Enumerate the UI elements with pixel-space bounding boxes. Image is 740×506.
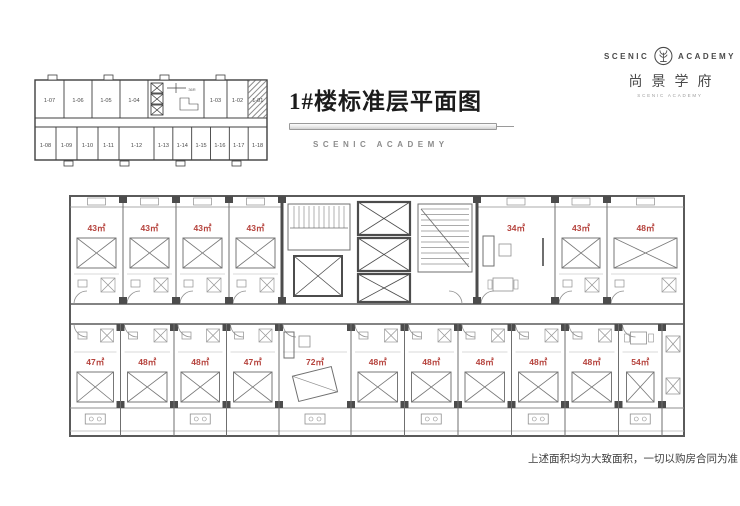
- table-icon: [499, 244, 511, 256]
- door-arc-icon: [462, 324, 475, 337]
- ac-unit-icon: [528, 414, 548, 424]
- keyplan-unit-number: 1-10: [82, 143, 93, 149]
- room-top-4: 43㎡: [233, 198, 278, 304]
- shower-icon: [385, 329, 398, 342]
- shower-icon: [207, 278, 221, 292]
- room-top-1: 43㎡: [74, 196, 123, 304]
- table-icon: [299, 336, 310, 347]
- balcony-equipment-icon: [666, 378, 680, 394]
- bed-icon: [77, 372, 114, 402]
- ac-unit-icon: [247, 198, 265, 205]
- elevator-icon: [151, 94, 163, 104]
- keyplan-unit-number: 1-01: [252, 98, 263, 104]
- keyplan-unit-number: 1-08: [40, 143, 51, 149]
- column: [119, 297, 127, 304]
- area-disclaimer: 上述面积均为大致面积，一切以购房合同为准: [528, 451, 738, 466]
- room-area-label: 48㎡: [191, 357, 209, 367]
- column: [603, 297, 611, 304]
- room-area-label: 43㎡: [88, 223, 106, 233]
- door-arc-icon: [125, 324, 138, 337]
- ac-unit-icon: [141, 198, 159, 205]
- door-arc-icon: [611, 291, 624, 304]
- ac-unit-icon: [572, 198, 590, 205]
- column: [172, 196, 180, 203]
- desk-icon: [292, 367, 337, 402]
- door-arc-icon: [569, 324, 582, 337]
- room-area-label: 48㎡: [529, 357, 547, 367]
- shower-icon: [585, 278, 599, 292]
- room-bottom-10: 48㎡: [569, 324, 619, 436]
- toilet-icon: [520, 332, 529, 339]
- shower-icon: [101, 278, 115, 292]
- keyplan-diagram: 1-071-061-051-041-031-021-0136R1-081-091…: [34, 74, 269, 167]
- door-arc-icon: [516, 324, 529, 337]
- bed-icon: [412, 372, 452, 402]
- room-area-label: 48㎡: [637, 223, 655, 233]
- page-title: 1#楼标准层平面图: [289, 82, 524, 116]
- ac-unit-icon: [637, 198, 655, 205]
- bed-icon: [627, 372, 655, 402]
- room-area-label: 48㎡: [422, 357, 440, 367]
- logo-tagline: SCENIC ACADEMY: [604, 93, 736, 98]
- column: [473, 297, 481, 304]
- room-area-label: 43㎡: [247, 223, 265, 233]
- dining-table-icon: [493, 278, 513, 291]
- room-area-label: 48㎡: [138, 357, 156, 367]
- door-arc-icon: [559, 291, 572, 304]
- keyplan-unit-number: 1-18: [252, 143, 263, 149]
- keyplan-unit-number: 1-15: [195, 143, 206, 149]
- toilet-icon: [78, 332, 87, 339]
- room-top-5: 34㎡: [481, 196, 555, 304]
- dining-table-icon: [631, 332, 647, 344]
- title-block: 1#楼标准层平面图 SCENIC ACADEMY: [289, 82, 524, 149]
- room-area-label: 43㎡: [572, 223, 590, 233]
- column: [278, 196, 286, 203]
- keyplan-unit-number: 1-14: [177, 143, 188, 149]
- tree-icon: [654, 44, 673, 68]
- toilet-icon: [131, 280, 140, 287]
- bed-icon: [183, 238, 222, 268]
- title-divider-bar: [289, 123, 497, 130]
- door-arc-icon: [180, 291, 193, 304]
- keyplan-unit-number: 1-11: [103, 143, 114, 149]
- column: [551, 297, 559, 304]
- elevator-icon: [358, 238, 410, 271]
- ac-unit-icon: [305, 414, 325, 424]
- toilet-icon: [413, 332, 422, 339]
- shower-icon: [154, 329, 167, 342]
- room-top-6: 43㎡: [559, 196, 607, 304]
- room-top-7: 48㎡: [611, 198, 680, 304]
- room-area-label: 48㎡: [369, 357, 387, 367]
- shower-icon: [492, 329, 505, 342]
- column: [603, 196, 611, 203]
- ac-unit-icon: [194, 198, 212, 205]
- elevator-icon: [358, 274, 410, 302]
- elevator-icon: [151, 105, 163, 115]
- bed-icon: [614, 238, 677, 268]
- keyplan-stair-label: 36R: [188, 87, 195, 92]
- room-bottom-4: 47㎡: [231, 324, 280, 436]
- door-arc-icon: [355, 324, 368, 337]
- door-arc-icon: [449, 291, 462, 304]
- logo-name-row: SCENIC ACADEMY: [604, 44, 736, 68]
- shower-icon: [207, 329, 220, 342]
- column: [278, 297, 286, 304]
- room-top-3: 43㎡: [180, 196, 229, 304]
- toilet-icon: [184, 280, 193, 287]
- elevator-icon: [294, 256, 342, 296]
- shower-icon: [599, 329, 612, 342]
- room-area-label: 72㎡: [306, 357, 324, 367]
- bed-icon: [465, 372, 505, 402]
- keyplan-unit-number: 1-13: [158, 143, 169, 149]
- keyplan-unit-number: 1-09: [61, 143, 72, 149]
- column: [172, 297, 180, 304]
- room-bottom-7: 48㎡: [409, 324, 459, 436]
- door-arc-icon: [233, 291, 246, 304]
- room-bottom-11: 54㎡: [623, 324, 663, 436]
- room-area-label: 47㎡: [86, 357, 104, 367]
- room-area-label: 48㎡: [583, 357, 601, 367]
- keyplan-unit-number: 1-02: [232, 98, 243, 104]
- room-bottom-2: 48㎡: [125, 324, 175, 436]
- elevator-icon: [151, 83, 163, 93]
- logo-chinese-name: 尚景学府: [604, 71, 736, 91]
- shower-icon: [260, 278, 274, 292]
- toilet-icon: [573, 332, 582, 339]
- logo-name-right: ACADEMY: [678, 52, 736, 61]
- shower-icon: [101, 329, 114, 342]
- sofa-icon: [483, 236, 494, 266]
- keyplan-unit-number: 1-05: [100, 98, 111, 104]
- door-arc-icon: [178, 324, 191, 337]
- shower-icon: [154, 278, 168, 292]
- room-area-label: 34㎡: [507, 223, 525, 233]
- room-area-label: 43㎡: [141, 223, 159, 233]
- column: [119, 196, 127, 203]
- room-bottom-9: 48㎡: [516, 324, 566, 436]
- toilet-icon: [563, 280, 572, 287]
- shower-icon: [438, 329, 451, 342]
- sofa-icon: [284, 332, 294, 358]
- ac-unit-icon: [190, 414, 210, 424]
- door-arc-icon: [481, 291, 494, 304]
- bed-icon: [562, 238, 600, 268]
- room-bottom-6: 48㎡: [355, 324, 405, 436]
- keyplan-unit-number: 1-17: [233, 143, 244, 149]
- keyplan-unit-number: 1-06: [72, 98, 83, 104]
- floorplan-drawing: 43㎡43㎡43㎡43㎡34㎡43㎡48㎡47㎡48㎡48㎡47㎡72㎡48㎡4…: [62, 186, 694, 452]
- toilet-icon: [359, 332, 368, 339]
- balcony-equipment-icon: [666, 336, 680, 352]
- ac-unit-icon: [507, 198, 525, 205]
- bed-icon: [181, 372, 220, 402]
- brand-logo: SCENIC ACADEMY 尚景学府 SCENIC ACADEMY: [604, 44, 736, 98]
- toilet-icon: [466, 332, 475, 339]
- toilet-icon: [78, 280, 87, 287]
- column: [225, 297, 233, 304]
- door-arc-icon: [74, 291, 87, 304]
- room-bottom-1: 47㎡: [74, 324, 121, 436]
- keyplan-unit-number: 1-07: [44, 98, 55, 104]
- room-area-label: 54㎡: [631, 357, 649, 367]
- room-area-label: 47㎡: [244, 357, 262, 367]
- room-bottom-8: 48㎡: [462, 324, 512, 436]
- ac-unit-icon: [630, 414, 650, 424]
- column: [551, 196, 559, 203]
- ac-unit-icon: [88, 198, 106, 205]
- room-area-label: 43㎡: [194, 223, 212, 233]
- bed-icon: [128, 372, 168, 402]
- toilet-icon: [129, 332, 138, 339]
- door-arc-icon: [74, 324, 87, 337]
- shower-icon: [662, 278, 676, 292]
- shower-icon: [259, 329, 272, 342]
- page: 1-071-061-051-041-031-021-0136R1-081-091…: [0, 0, 740, 506]
- bed-icon: [519, 372, 559, 402]
- door-arc-icon: [127, 291, 140, 304]
- bed-icon: [130, 238, 169, 268]
- room-area-label: 48㎡: [476, 357, 494, 367]
- logo-name-left: SCENIC: [604, 52, 649, 61]
- keyplan-unit-number: 1-04: [128, 98, 139, 104]
- door-arc-icon: [231, 324, 244, 337]
- toilet-icon: [237, 280, 246, 287]
- shower-icon: [545, 329, 558, 342]
- toilet-icon: [235, 332, 244, 339]
- toilet-icon: [615, 280, 624, 287]
- column: [225, 196, 233, 203]
- ac-unit-icon: [421, 414, 441, 424]
- elevator-icon: [358, 202, 410, 235]
- column: [473, 196, 481, 203]
- keyplan-unit-number: 1-12: [131, 143, 142, 149]
- bed-icon: [236, 238, 275, 268]
- title-subtitle: SCENIC ACADEMY: [289, 140, 524, 149]
- keyplan-unit-number: 1-16: [214, 143, 225, 149]
- bed-icon: [77, 238, 116, 268]
- door-arc-icon: [409, 324, 422, 337]
- toilet-icon: [182, 332, 191, 339]
- room-bottom-3: 48㎡: [178, 324, 227, 436]
- keyplan-unit-number: 1-03: [210, 98, 221, 104]
- room-top-2: 43㎡: [127, 196, 176, 304]
- bed-icon: [572, 372, 612, 402]
- ac-unit-icon: [85, 414, 105, 424]
- bed-icon: [358, 372, 398, 402]
- bed-icon: [234, 372, 273, 402]
- room-bottom-5: 72㎡: [283, 324, 351, 436]
- elevator-stair-core: [282, 196, 477, 304]
